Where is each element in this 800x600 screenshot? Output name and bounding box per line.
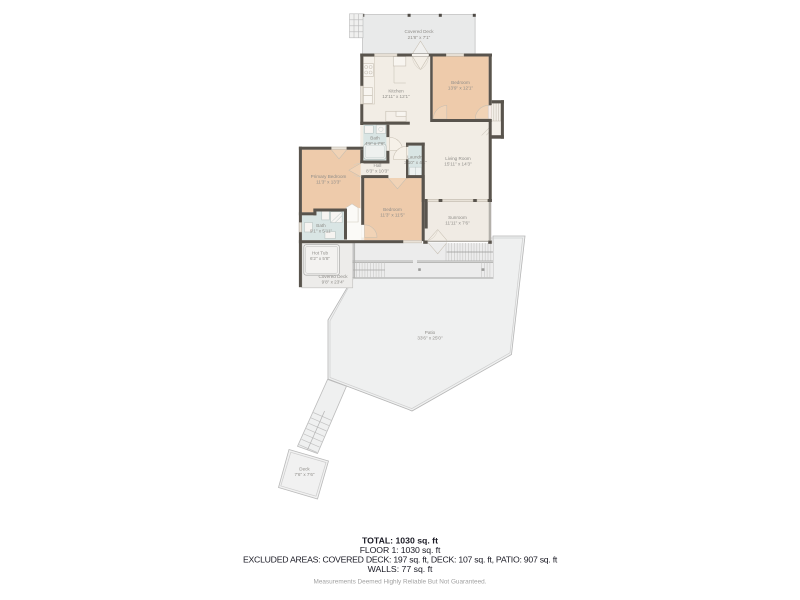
svg-text:11'11" x 7'6": 11'11" x 7'6" (445, 221, 470, 226)
svg-text:6'2" x 5'8": 6'2" x 5'8" (310, 256, 330, 261)
svg-text:Primary Bedroom: Primary Bedroom (311, 174, 347, 179)
svg-text:4'9" x 7'6": 4'9" x 7'6" (365, 141, 385, 146)
svg-text:Hot Tub: Hot Tub (312, 251, 329, 256)
svg-text:9'1" x 5'11": 9'1" x 5'11" (310, 229, 333, 234)
svg-text:11'3" x 13'3": 11'3" x 13'3" (316, 180, 341, 185)
svg-text:12'11" x 12'1": 12'11" x 12'1" (382, 94, 410, 99)
svg-text:Hall: Hall (374, 163, 382, 168)
svg-text:Covered Deck: Covered Deck (404, 29, 434, 34)
svg-text:WALLS: 77 sq. ft: WALLS: 77 sq. ft (368, 564, 433, 574)
svg-text:33'6" x 25'0": 33'6" x 25'0" (417, 336, 443, 341)
svg-text:11'3" x 11'5": 11'3" x 11'5" (380, 213, 405, 218)
svg-text:Bath: Bath (370, 136, 380, 141)
svg-text:FLOOR 1: 1030 sq. ft: FLOOR 1: 1030 sq. ft (360, 545, 441, 555)
svg-text:Bath: Bath (316, 223, 326, 228)
svg-text:13'9" x 12'1": 13'9" x 12'1" (448, 86, 474, 91)
svg-text:Patio: Patio (425, 330, 436, 335)
svg-text:7'6" x 7'6": 7'6" x 7'6" (294, 472, 314, 477)
svg-text:Sunroom: Sunroom (448, 215, 467, 220)
svg-text:9'8" x 23'4": 9'8" x 23'4" (322, 279, 345, 284)
svg-text:TOTAL: 1030 sq. ft: TOTAL: 1030 sq. ft (362, 535, 438, 545)
svg-text:Bedroom: Bedroom (451, 80, 470, 85)
svg-text:21'8" x 7'1": 21'8" x 7'1" (408, 35, 431, 40)
svg-text:Bedroom: Bedroom (383, 207, 402, 212)
svg-text:Deck: Deck (299, 467, 310, 472)
svg-text:Measurements Deemed Highly Rel: Measurements Deemed Highly Reliable But … (314, 579, 487, 586)
svg-text:8'3" x 10'3": 8'3" x 10'3" (366, 169, 389, 174)
svg-text:15'11" x 14'3": 15'11" x 14'3" (444, 162, 472, 167)
svg-text:EXCLUDED AREAS: COVERED DECK:: EXCLUDED AREAS: COVERED DECK: 197 sq. ft… (243, 554, 558, 564)
svg-text:Living Room: Living Room (445, 156, 471, 161)
svg-text:Kitchen: Kitchen (388, 89, 404, 94)
